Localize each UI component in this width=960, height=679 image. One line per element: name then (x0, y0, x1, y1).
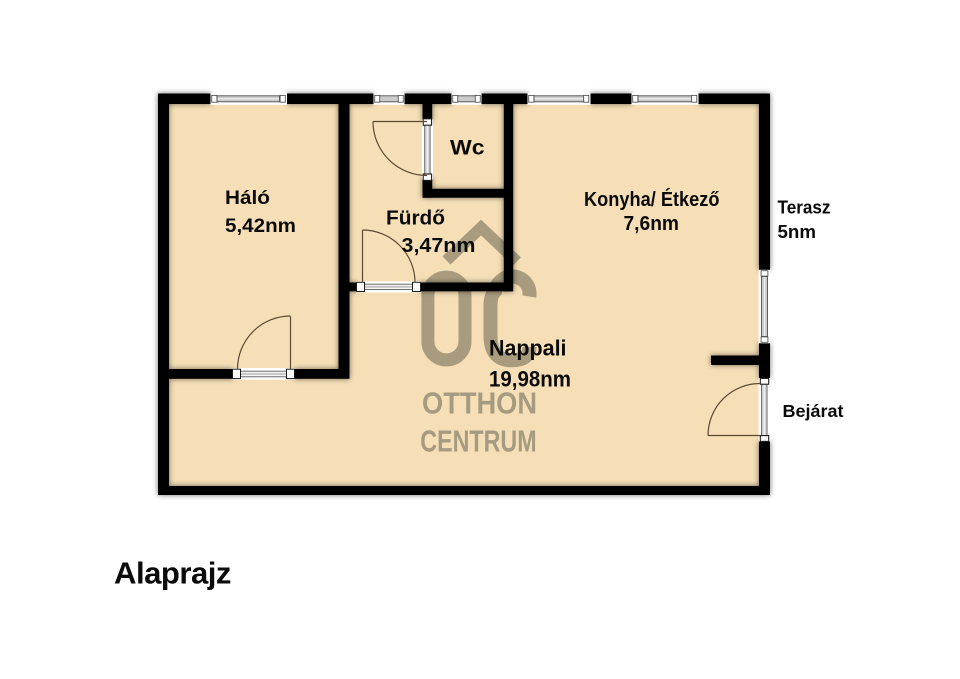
svg-text:Wc: Wc (450, 137, 485, 160)
svg-text:Alaprajz: Alaprajz (114, 556, 231, 591)
svg-text:Konyha/ Étkező: Konyha/ Étkező (584, 188, 720, 211)
svg-text:Háló: Háló (225, 187, 270, 209)
svg-text:3,47nm: 3,47nm (402, 235, 476, 257)
svg-text:CENTRUM: CENTRUM (420, 423, 536, 458)
svg-text:Bejárat: Bejárat (783, 401, 844, 421)
svg-text:5,42nm: 5,42nm (225, 215, 296, 237)
svg-text:Nappali: Nappali (489, 336, 567, 361)
svg-text:19,98nm: 19,98nm (489, 367, 571, 392)
svg-text:Fürdő: Fürdő (386, 208, 445, 230)
svg-text:5nm: 5nm (778, 222, 817, 242)
svg-text:7,6nm: 7,6nm (624, 213, 680, 235)
svg-text:Terasz: Terasz (778, 198, 831, 218)
